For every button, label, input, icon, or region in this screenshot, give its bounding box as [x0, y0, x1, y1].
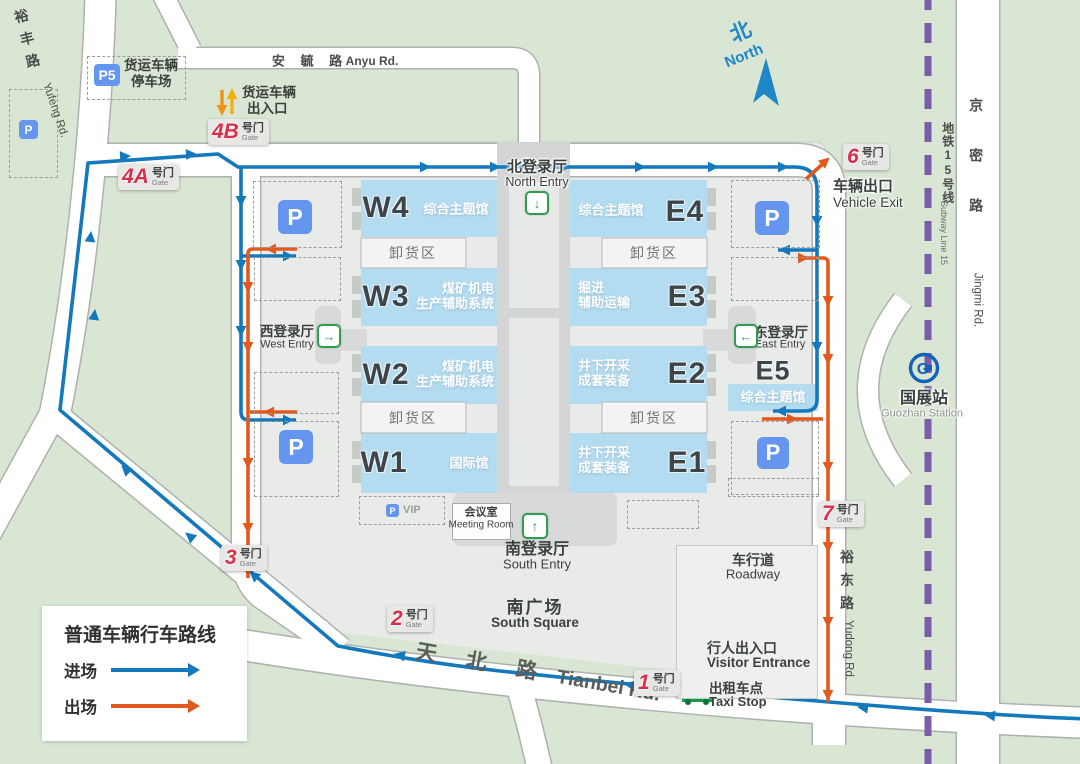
hall-w2-code: W2	[363, 358, 410, 393]
subway-line-label-cn: 地铁15号线	[940, 122, 954, 204]
hall-e1-code: E1	[668, 446, 707, 481]
meeting-room-label-cn: 会议室	[465, 507, 498, 520]
legend-exit-arrow-icon	[111, 704, 189, 708]
hall-w2-desc: 煤矿机电 生产辅助系统	[416, 360, 494, 390]
west-entry-label-en: West Entry	[260, 339, 314, 352]
unload-label-w-bottom: 卸货区	[389, 410, 437, 426]
legend: 普通车辆行车路线 进场 出场	[42, 606, 247, 741]
west-entry-label-cn: 西登录厅	[260, 324, 314, 340]
taxi-stop-label-en: Taxi Stop	[709, 695, 767, 710]
vehicle-exit-cn: 车辆出口	[833, 178, 903, 195]
south-square-label-en: South Square	[491, 615, 579, 631]
gate-7-number: 7	[822, 502, 834, 526]
hall-w1-desc: 国际馆	[449, 457, 488, 472]
station-label-en: Guozhan Station	[881, 408, 963, 421]
hall-w3-code: W3	[363, 280, 410, 315]
hall-w1-code: W1	[361, 446, 408, 481]
hall-e2-desc2: 成套装备	[578, 374, 630, 389]
gate-suffix-en: Gate	[862, 159, 884, 167]
venue-map: G P5 P P P P P P VIP ↓ ↑ → ← 安 毓 路 Anyu …	[0, 0, 1080, 764]
yudong-road-label-cn: 裕东路	[839, 550, 855, 619]
hall-e2-code: E2	[668, 357, 707, 392]
hall-e3-code: E3	[668, 280, 707, 315]
hall-e3-desc1: 掘进	[578, 281, 630, 296]
hall-e5-desc: 综合主题馆	[740, 391, 805, 406]
gate-6: 6 号门Gate	[843, 144, 889, 170]
vehicle-exit-label: 车辆出口 Vehicle Exit	[833, 178, 903, 211]
gate-4a-number: 4A	[122, 165, 149, 189]
south-entry-label-en: South Entry	[503, 558, 571, 573]
parking-icon-far-west: P	[19, 120, 38, 139]
gate-3: 3 号门Gate	[221, 545, 267, 571]
vip-label: VIP	[403, 504, 421, 517]
compass-arrow-icon	[753, 58, 779, 106]
meeting-room-label-en: Meeting Room	[448, 519, 513, 531]
parking-icon-se: P	[757, 437, 789, 469]
north-entry-label-cn: 北登录厅	[507, 158, 567, 175]
anyu-road-label-en: Anyu Rd.	[346, 55, 399, 69]
unload-label-w-top: 卸货区	[389, 245, 437, 261]
gate-1-number: 1	[638, 671, 650, 695]
roadway-label-en: Roadway	[726, 568, 780, 583]
south-entry-icon: ↑	[522, 513, 548, 539]
freight-gate-arrows	[217, 88, 238, 116]
gate-suffix-en: Gate	[653, 685, 675, 693]
hall-w4-code: W4	[363, 191, 410, 226]
hall-w4-desc: 综合主题馆	[423, 203, 488, 218]
vip-parking-lot	[359, 496, 445, 525]
freight-parking-label: 货运车辆 停车场	[124, 58, 178, 89]
hall-w3-desc2: 生产辅助系统	[416, 297, 494, 312]
north-entry-label-en: North Entry	[505, 175, 568, 189]
gate-suffix-en: Gate	[240, 560, 262, 568]
legend-enter-arrow-icon	[111, 668, 189, 672]
gate-4b: 4B 号门Gate	[208, 119, 269, 145]
hall-e2-desc1: 井下开采	[578, 359, 630, 374]
jingmi-road-label-en: Jingmi Rd.	[970, 273, 983, 327]
gate-suffix-en: Gate	[242, 134, 264, 142]
gate-7: 7 号门Gate	[818, 501, 864, 527]
gate-4b-number: 4B	[212, 120, 239, 144]
gate-4a: 4A 号门Gate	[118, 164, 179, 190]
parking-lot-e-mid	[731, 257, 819, 301]
hall-w2-desc1: 煤矿机电	[416, 360, 494, 375]
jingmi-road-label-cn: 京密路	[968, 98, 984, 248]
hall-w2-desc2: 生产辅助系统	[416, 375, 494, 390]
freight-gate-line2: 出入口	[242, 101, 296, 117]
hall-e1-desc: 井下开采 成套装备	[578, 446, 630, 476]
gate-1: 1 号门Gate	[634, 670, 680, 696]
vehicle-exit-en: Vehicle Exit	[833, 195, 903, 211]
unload-label-e-top: 卸货区	[630, 245, 678, 261]
gate-2: 2 号门Gate	[387, 606, 433, 632]
hall-e2-desc: 井下开采 成套装备	[578, 359, 630, 389]
legend-exit-label: 出场	[64, 694, 97, 718]
south-lot-2	[728, 478, 819, 497]
legend-title: 普通车辆行车路线	[64, 620, 216, 647]
gate-6-number: 6	[847, 145, 859, 169]
parking-icon-nw: P	[278, 200, 312, 234]
hall-e1-desc2: 成套装备	[578, 461, 630, 476]
east-entry-icon: ←	[734, 324, 758, 348]
subway-logo-icon: G	[911, 355, 938, 382]
east-entry-label-en: East Entry	[755, 339, 806, 352]
freight-gate-label: 货运车辆 出入口	[242, 85, 296, 116]
hall-e4-code: E4	[666, 195, 705, 230]
p5-parking-icon: P5	[94, 64, 120, 86]
north-entry-icon: ↓	[525, 191, 549, 215]
hall-e3-desc2: 辅助运输	[578, 296, 630, 311]
gate-suffix-en: Gate	[837, 516, 859, 524]
legend-enter-label: 进场	[64, 658, 97, 682]
parking-icon-sw: P	[279, 430, 313, 464]
gate-suffix-en: Gate	[406, 621, 428, 629]
unload-label-e-bottom: 卸货区	[630, 410, 678, 426]
gate-3-number: 3	[225, 546, 237, 570]
station-label-cn: 国展站	[900, 390, 948, 408]
anyu-road-label-cn: 安 毓 路	[272, 55, 348, 70]
hall-e4-desc: 综合主题馆	[578, 204, 643, 219]
gate-2-number: 2	[391, 607, 403, 631]
gate-suffix-en: Gate	[152, 179, 174, 187]
freight-parking-line2: 停车场	[124, 74, 178, 90]
hall-e1-desc1: 井下开采	[578, 446, 630, 461]
hall-e3-desc: 掘进 辅助运输	[578, 281, 630, 311]
parking-lot-w-mid2	[254, 372, 339, 414]
yudong-road-label-en: Yudong Rd.	[841, 620, 854, 680]
freight-parking-line1: 货运车辆	[124, 58, 178, 74]
subway-line-label-en: Subway Line 15	[939, 201, 949, 265]
hall-w3-desc: 煤矿机电 生产辅助系统	[416, 282, 494, 312]
south-lot-1	[627, 500, 699, 529]
west-entry-icon: →	[317, 324, 341, 348]
visitor-entrance-label-cn: 行人出入口	[707, 640, 777, 656]
vip-parking-icon: P	[386, 504, 399, 517]
parking-lot-w-mid	[254, 257, 341, 301]
visitor-entrance-label-en: Visitor Entrance	[707, 655, 810, 671]
hall-w3-desc1: 煤矿机电	[416, 282, 494, 297]
parking-icon-ne: P	[755, 201, 789, 235]
hall-e5-code: E5	[755, 355, 790, 386]
freight-gate-line1: 货运车辆	[242, 85, 296, 101]
